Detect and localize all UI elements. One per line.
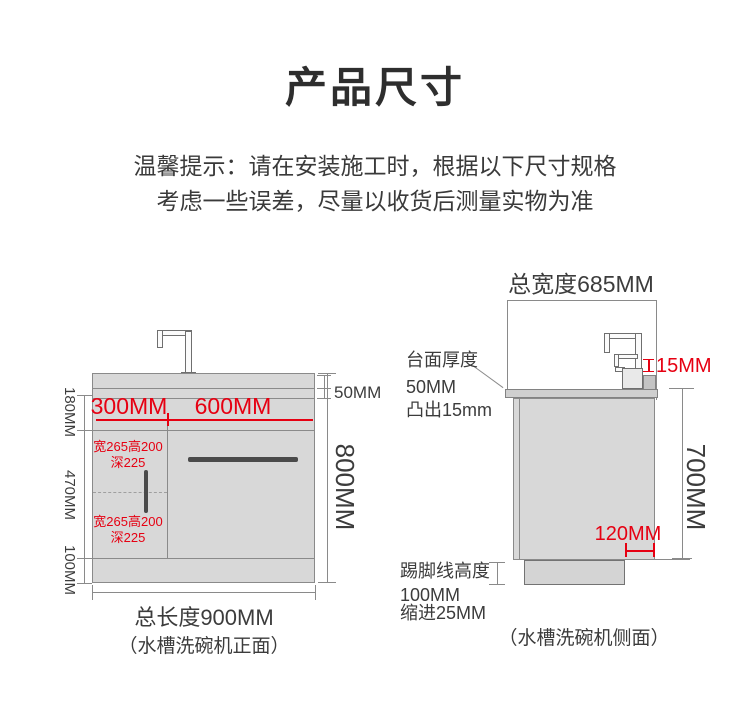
faucet-body-side [622,368,643,389]
notice-line-1: 温馨提示：请在安装施工时，根据以下尺寸规格 [64,153,686,179]
body-height-tick-bottom [672,558,692,559]
countertop-dim-tick-1 [317,375,331,376]
front-view-caption: （水槽洗碗机正面） [84,636,324,658]
countertop-dim-tick-2 [317,388,331,389]
left-dim-line [84,395,85,583]
side-view-caption: （水槽洗碗机侧面） [464,628,704,650]
ledge-height-label: 15MM [656,355,712,378]
kick-inset-label: 120MM [578,523,678,546]
kick-inset-tick-right [653,543,655,557]
product-dimensions-page: 产品尺寸 温馨提示：请在安装施工时，根据以下尺寸规格 考虑一些误差，尽量以收货后… [0,0,750,714]
door-edge-line-side [519,398,520,560]
length-dim-tick-right [315,585,316,600]
faucet-hook-front [157,330,163,348]
drawer-dashed-line [93,492,167,493]
countertop-dim-tick-3 [317,398,331,399]
body-height-label: 700MM [684,427,710,547]
countertop-note-line1: 台面厚度 [406,350,478,371]
inner-note-top-line2: 深225 [91,456,165,471]
countertop-note-line2: 50MM [406,377,456,398]
total-width-label: 总宽度685MM [471,271,691,297]
total-width-leg-left [507,300,508,389]
total-width-leg-right [656,300,657,400]
kick-note-line3: 缩进25MM [400,603,486,624]
countertop-dim-line [324,375,325,398]
ledge-dim-tick-top [643,359,654,360]
kick-note-line1: 踢脚线高度 [400,561,490,582]
inner-note-top-line1: 宽265高200 [91,440,165,455]
faucet-riser-side [635,333,642,371]
kick-plate-side [524,560,625,585]
total-length-label: 总长度900MM [94,605,314,630]
countertop-leader-line [474,366,504,388]
inner-note-bottom-line2: 深225 [91,531,165,546]
countertop-note-line3: 凸出15mm [406,400,492,421]
left-door-handle [144,470,148,513]
length-dim-line [92,592,316,593]
notice-line-2: 考虑一些误差，尽量以收货后测量实物为准 [64,188,686,214]
left-dim-tick-1 [77,395,92,396]
faucet-inner-hook-side [614,354,619,367]
faucet-riser-front [185,331,192,374]
left-dim-tick-4 [77,583,92,584]
countertop-line-front [92,388,315,389]
body-height-tick-top [669,388,694,389]
kick-section-label: 100MM [62,530,78,610]
door-divider-front [167,420,168,558]
countertop-thickness-label: 50MM [334,383,381,403]
kick-inset-dim-line [625,550,655,552]
page-title: 产品尺寸 [215,64,535,112]
kick-inset-tick-left [625,543,627,557]
kick-height-tick-bottom [489,584,505,585]
right-door-handle [188,457,298,462]
length-dim-tick-left [92,585,93,600]
left-dim-tick-2 [77,430,92,431]
kick-height-dim-line [497,562,498,585]
countertop-side [505,389,658,398]
upper-section-line-front [92,430,315,431]
kick-line-front [92,558,315,559]
height-dim-line [327,373,328,583]
kick-height-tick-top [489,562,505,563]
back-ledge [643,375,656,390]
inner-note-bottom-line1: 宽265高200 [91,515,165,530]
middle-section-label: 470MM [62,455,78,535]
total-height-label: 800MM [333,427,359,547]
ledge-dim-tick-bottom [643,371,654,372]
width-right-label: 600MM [173,393,293,419]
total-width-dim-line [507,300,657,301]
left-dim-tick-3 [77,558,92,559]
height-dim-tick-bottom [318,582,336,583]
upper-section-label: 180MM [62,372,78,452]
faucet-hook-side [604,333,610,353]
height-dim-tick-top [318,373,336,374]
width-left-label: 300MM [69,393,189,419]
